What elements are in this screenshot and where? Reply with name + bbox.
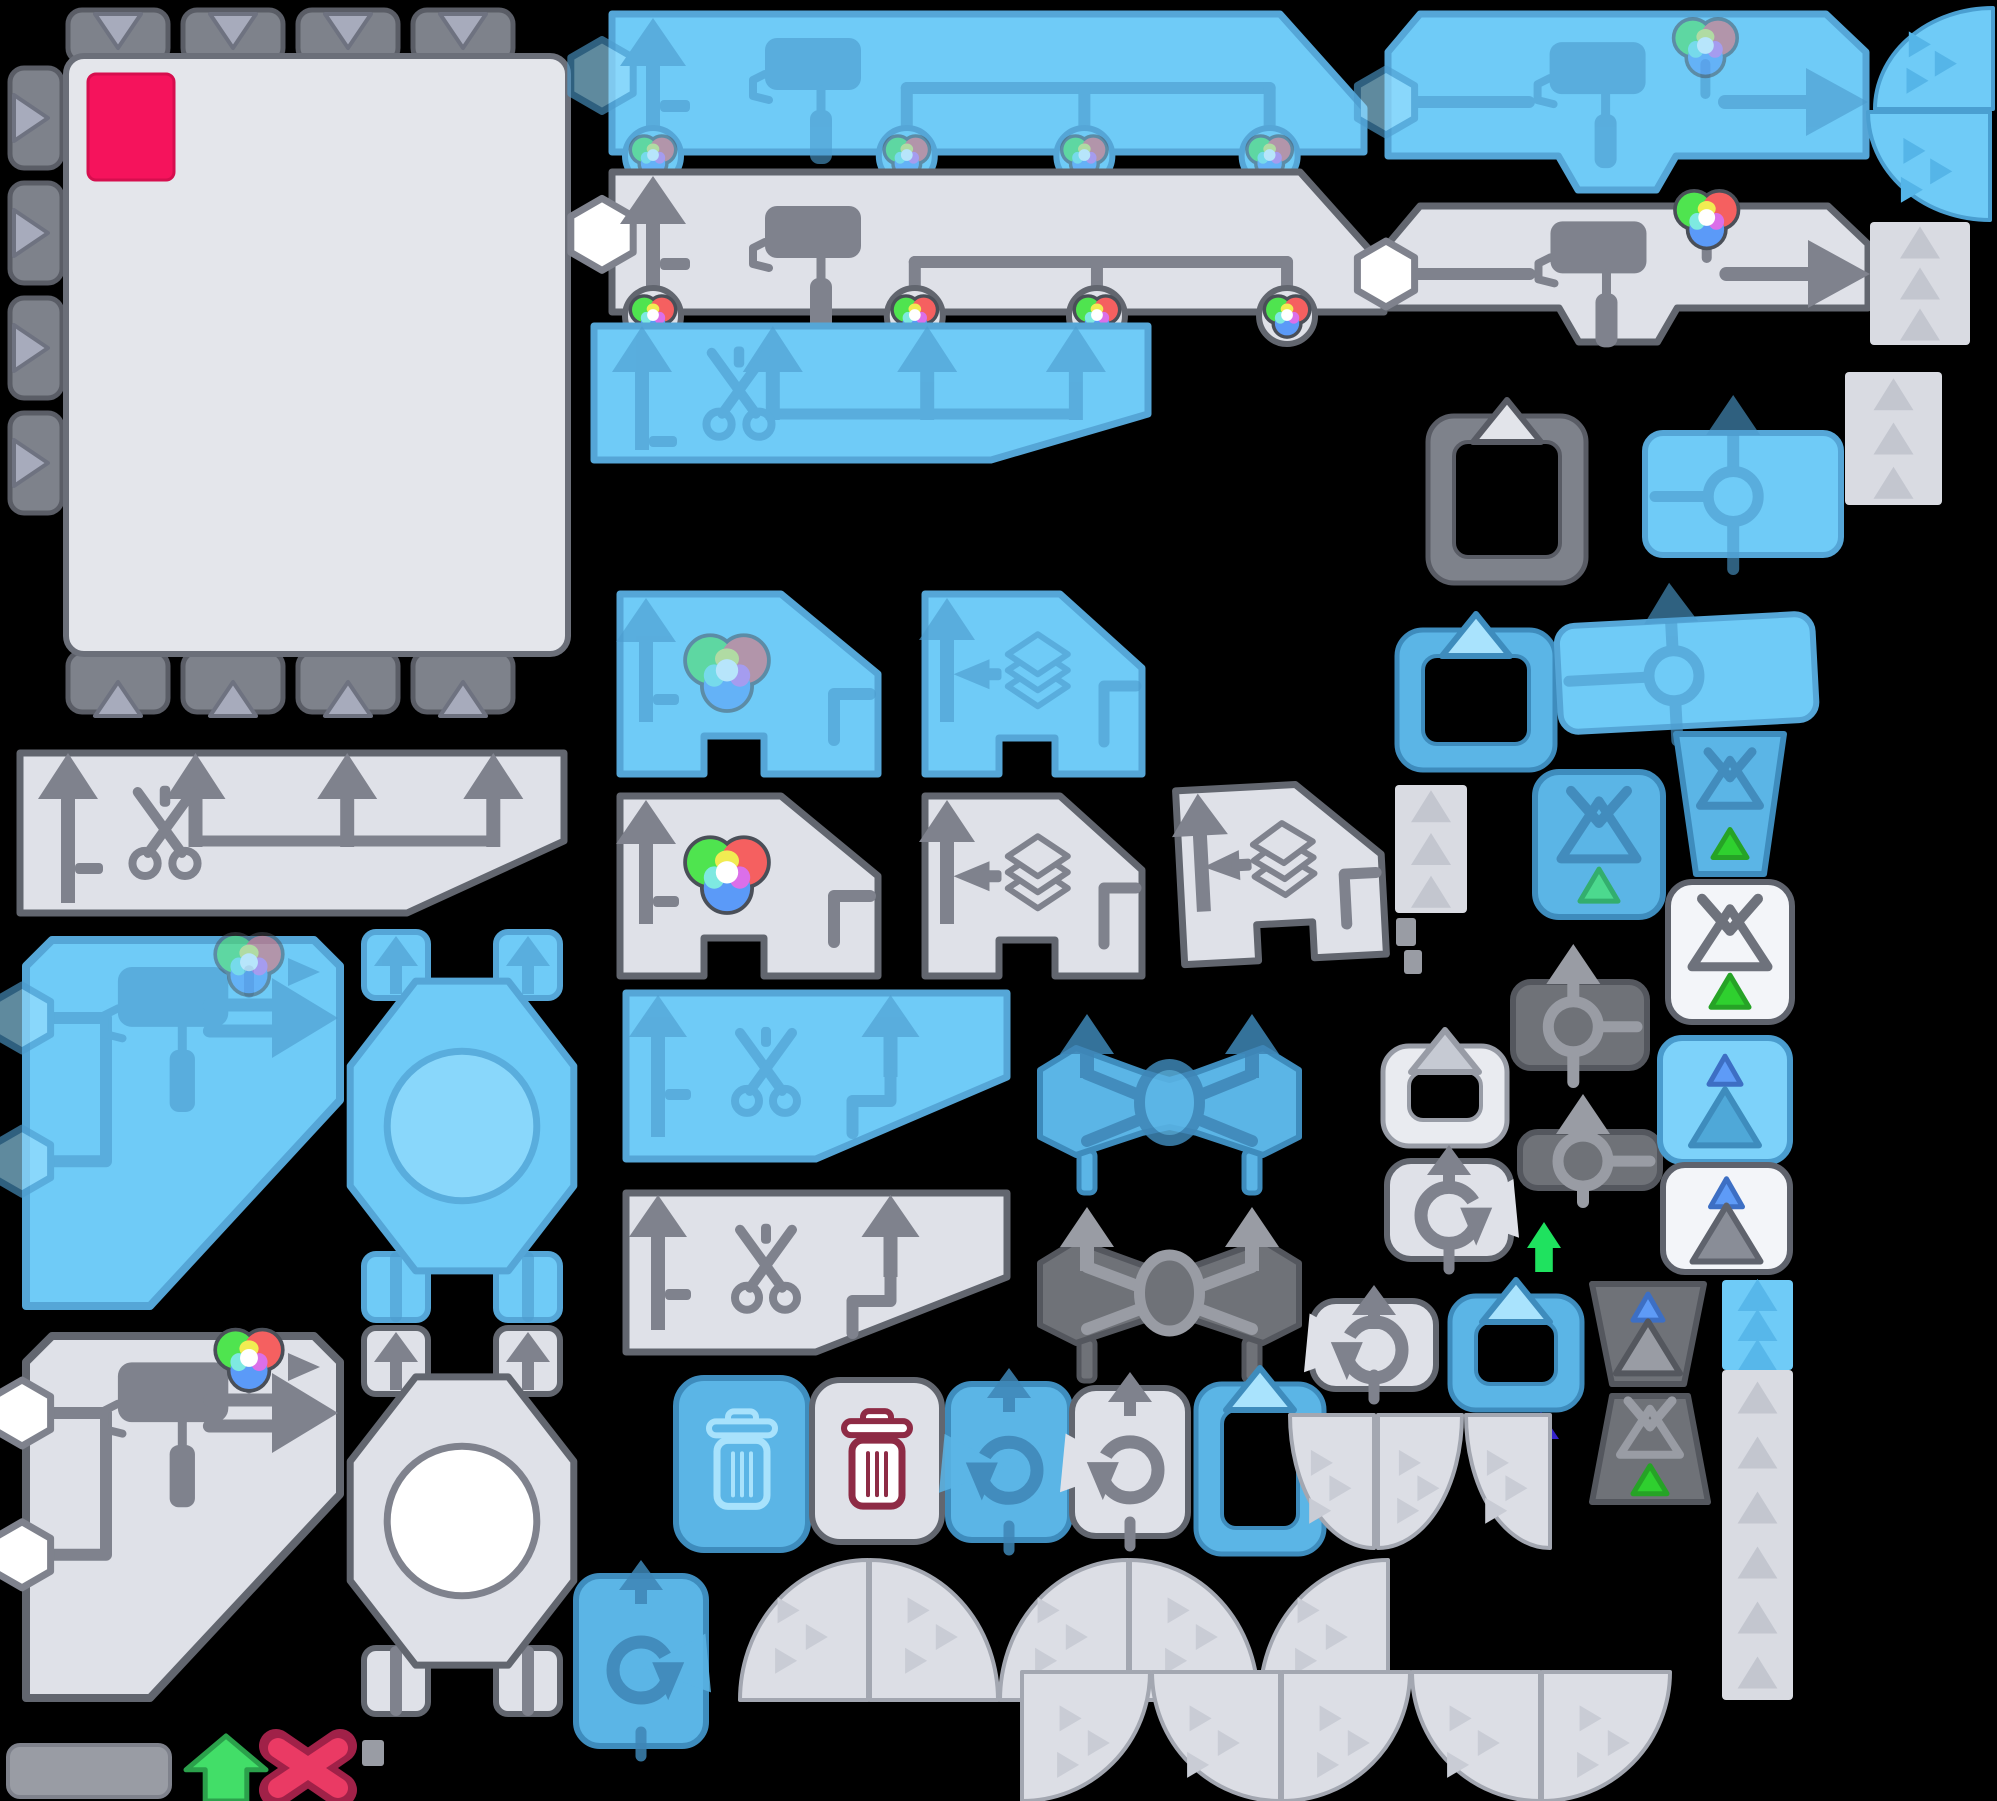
green-arrow-small: [1527, 1222, 1561, 1272]
move-panel-blue-a: [1645, 395, 1841, 569]
paste-frame-gray: [1428, 400, 1586, 583]
tri-square-blue: [1660, 1038, 1790, 1162]
mixer-machine-gray: [350, 1328, 574, 1714]
fan-blue-a: [1875, 8, 1993, 109]
fan-8: [1466, 1415, 1550, 1548]
strip-a: [1870, 222, 1970, 345]
strip-b: [1845, 372, 1942, 505]
fan-1: [740, 1560, 868, 1700]
cut-panel-blue: [626, 993, 1007, 1159]
fan-blue-b: [1868, 112, 1990, 220]
recolor-panel-blue: [616, 594, 878, 774]
layers-panel-gray-b: [1170, 780, 1387, 965]
fan-2: [870, 1560, 998, 1700]
fan-7: [1378, 1415, 1462, 1548]
funnel-bucket-dark: [1592, 1396, 1708, 1502]
fan-11: [1282, 1672, 1410, 1801]
tri-bucket-dark: [1592, 1284, 1704, 1384]
green-arrow-large: [186, 1736, 266, 1801]
strip-blue: [1722, 1279, 1793, 1371]
funnel-bucket-blue: [1676, 734, 1784, 874]
move-panel-dark-a: [1513, 944, 1647, 1082]
tri-square-white: [1663, 1165, 1790, 1272]
bit-b: [1404, 950, 1422, 974]
undo-tile-gray: [1060, 1372, 1188, 1546]
bit-c: [362, 1740, 384, 1766]
sprite-sheet: [0, 0, 1997, 1801]
fan-12: [1412, 1672, 1540, 1801]
undo-tile-gray-b: [1304, 1285, 1436, 1399]
bit-a: [1396, 918, 1416, 946]
canvas-frame: [10, 10, 568, 716]
swap-panel-blue: [1040, 1014, 1299, 1193]
mixer-machine-blue: [350, 932, 574, 1320]
fan-10: [1152, 1672, 1280, 1801]
funnel-square-blue: [1535, 772, 1663, 917]
paint-strip-blue: [571, 14, 1364, 184]
redo-tile-blue: [576, 1560, 711, 1756]
roller-panel-blue: [1357, 14, 1868, 190]
fan-13: [1542, 1672, 1670, 1801]
swap-panel-dark: [1040, 1207, 1299, 1381]
strip-tall: [1722, 1370, 1793, 1700]
roller-panel-gray: [1357, 192, 1870, 347]
gray-slab: [8, 1745, 170, 1797]
move-panel-dark-b: [1520, 1094, 1660, 1202]
red-x: [276, 1746, 340, 1790]
trash-tile-blue: [676, 1378, 808, 1550]
painter-panel-blue: [0, 935, 340, 1306]
painter-panel-gray: [0, 1331, 340, 1698]
paste-frame-blue-a: [1397, 614, 1555, 770]
funnel-square-white: [1668, 882, 1792, 1022]
cut-panel-gray: [626, 1193, 1007, 1352]
cut-strip-gray: [20, 753, 564, 913]
layers-panel-gray: [919, 796, 1142, 976]
sprite-sheet-canvas: [0, 0, 1997, 1801]
trash-tile-gray: [812, 1380, 942, 1542]
paint-strip-gray: [571, 172, 1384, 344]
move-panel-blue-b: [1554, 575, 1818, 746]
undo-tile-blue: [939, 1368, 1070, 1550]
layers-panel-blue: [919, 594, 1142, 774]
strip-c: [1395, 785, 1467, 913]
paste-frame-blue-b: [1450, 1280, 1582, 1410]
redo-tile-gray: [1387, 1145, 1519, 1269]
recolor-panel-gray: [616, 796, 878, 976]
paste-frame-light: [1383, 1030, 1507, 1146]
cut-strip-blue: [594, 326, 1148, 460]
fan-9: [1022, 1672, 1150, 1801]
